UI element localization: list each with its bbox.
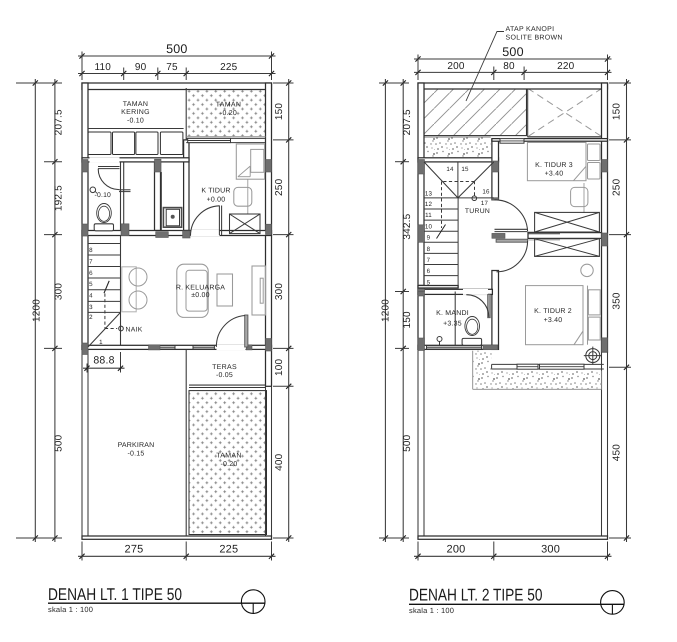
svg-text:TAMAN: TAMAN (123, 101, 148, 108)
svg-text:1200: 1200 (381, 299, 392, 322)
svg-text:±0.00: ±0.00 (191, 292, 209, 299)
svg-text:300: 300 (541, 543, 560, 555)
svg-text:450: 450 (612, 444, 623, 462)
svg-text:150: 150 (274, 103, 285, 121)
svg-text:80: 80 (503, 61, 515, 72)
svg-text:8: 8 (427, 246, 431, 253)
svg-text:6: 6 (427, 268, 431, 275)
svg-text:TAMAN: TAMAN (216, 453, 241, 460)
svg-text:300: 300 (274, 283, 285, 301)
svg-text:7: 7 (427, 257, 431, 264)
svg-text:225: 225 (220, 62, 238, 73)
svg-text:12: 12 (425, 201, 433, 208)
svg-text:75: 75 (166, 62, 178, 73)
svg-text:192.5: 192.5 (54, 185, 65, 211)
svg-text:3: 3 (89, 304, 93, 311)
svg-text:16: 16 (482, 189, 490, 196)
svg-text:275: 275 (125, 543, 144, 555)
svg-text:200: 200 (447, 543, 466, 555)
svg-text:skala 1 : 100: skala 1 : 100 (48, 605, 93, 614)
svg-text:DENAH LT. 2 TIPE 50: DENAH LT. 2 TIPE 50 (409, 586, 543, 605)
svg-text:TERAS: TERAS (212, 364, 237, 371)
svg-text:220: 220 (557, 61, 575, 72)
svg-text:-0.05: -0.05 (216, 372, 233, 379)
svg-text:K. MANDI: K. MANDI (436, 310, 469, 317)
svg-text:150: 150 (402, 311, 413, 329)
svg-text:15: 15 (461, 166, 469, 173)
svg-text:NAIK: NAIK (126, 326, 143, 333)
svg-text:200: 200 (447, 61, 465, 72)
svg-text:R. KELUARGA: R. KELUARGA (176, 285, 225, 292)
svg-text:7: 7 (89, 258, 93, 265)
svg-text:100: 100 (274, 359, 285, 377)
svg-text:250: 250 (612, 178, 623, 196)
svg-text:1200: 1200 (32, 299, 43, 322)
svg-text:500: 500 (402, 434, 413, 452)
svg-text:+3.40: +3.40 (545, 171, 564, 178)
svg-text:500: 500 (502, 45, 523, 59)
svg-text:207.5: 207.5 (54, 109, 65, 135)
svg-text:225: 225 (219, 543, 238, 555)
svg-text:K TIDUR: K TIDUR (201, 187, 230, 194)
svg-text:1: 1 (99, 339, 103, 346)
svg-text:250: 250 (274, 178, 285, 196)
svg-text:350: 350 (612, 292, 623, 310)
svg-text:KERING: KERING (121, 109, 150, 116)
svg-text:5: 5 (89, 281, 93, 288)
svg-text:-0.20: -0.20 (221, 461, 238, 468)
svg-text:500: 500 (54, 434, 65, 452)
svg-text:17: 17 (481, 200, 489, 207)
svg-text:+0.00: +0.00 (207, 197, 226, 204)
svg-text:14: 14 (446, 166, 454, 173)
svg-text:4: 4 (89, 293, 93, 300)
svg-text:207.5: 207.5 (402, 109, 413, 135)
svg-text:9: 9 (427, 235, 431, 242)
svg-text:TAMAN: TAMAN (216, 102, 241, 109)
svg-text:342.5: 342.5 (402, 213, 413, 239)
svg-text:K. TIDUR 3: K. TIDUR 3 (535, 162, 573, 169)
svg-text:10: 10 (425, 223, 433, 230)
svg-text:+3.35: +3.35 (443, 321, 462, 328)
svg-text:8: 8 (89, 247, 93, 254)
svg-text:150: 150 (612, 103, 623, 121)
svg-text:ATAP KANOPI: ATAP KANOPI (506, 26, 555, 33)
svg-text:-0.10: -0.10 (95, 192, 112, 199)
svg-text:300: 300 (54, 283, 65, 301)
svg-text:-0.20: -0.20 (220, 110, 237, 117)
svg-text:11: 11 (425, 212, 432, 219)
svg-text:-0.15: -0.15 (128, 451, 145, 458)
svg-text:2: 2 (89, 314, 93, 321)
svg-text:88.8: 88.8 (93, 355, 114, 367)
svg-text:PARKIRAN: PARKIRAN (118, 442, 155, 449)
svg-text:-0.10: -0.10 (127, 117, 144, 124)
svg-text:400: 400 (274, 453, 285, 471)
svg-text:SOLITE BROWN: SOLITE BROWN (506, 35, 563, 42)
svg-text:90: 90 (135, 62, 147, 73)
svg-text:skala 1 : 100: skala 1 : 100 (409, 606, 454, 615)
svg-text:K. TIDUR 2: K. TIDUR 2 (534, 308, 572, 315)
svg-text:500: 500 (166, 42, 187, 56)
svg-text:13: 13 (425, 191, 433, 198)
svg-text:TURUN: TURUN (465, 208, 490, 215)
svg-text:6: 6 (89, 270, 93, 277)
svg-text:+3.40: +3.40 (544, 317, 563, 324)
svg-text:110: 110 (95, 62, 112, 73)
svg-text:DENAH LT. 1 TIPE 50: DENAH LT. 1 TIPE 50 (48, 585, 182, 604)
